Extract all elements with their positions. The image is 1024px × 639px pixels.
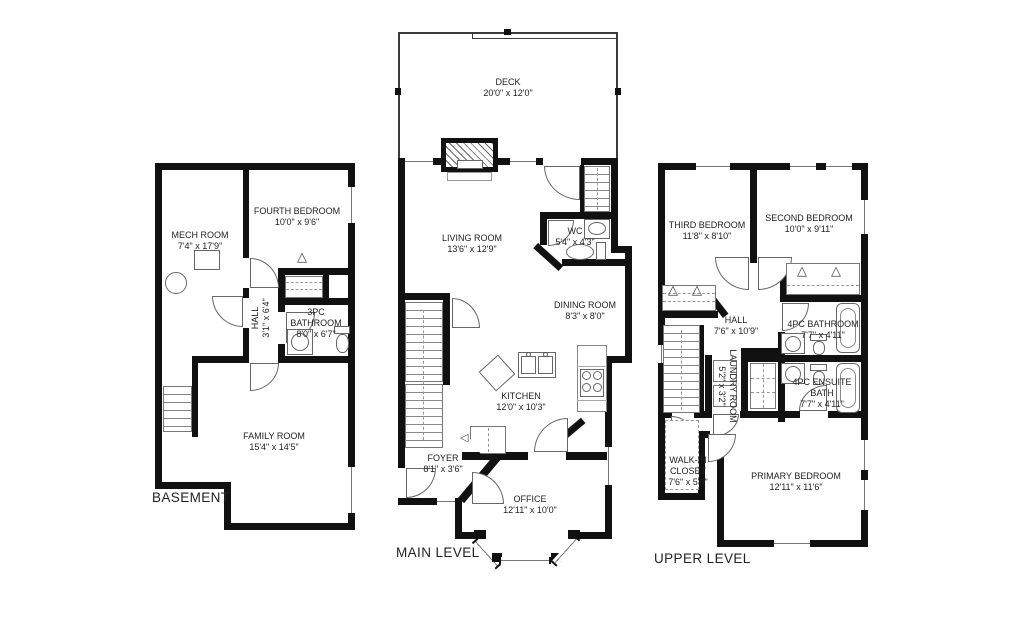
wall	[192, 356, 249, 363]
room-dims: 7'6" x 5'8"	[657, 477, 719, 488]
wall	[741, 355, 748, 411]
bay-window	[499, 557, 551, 564]
wall	[705, 355, 712, 411]
room-dims: 20'0" x 12'0"	[468, 88, 548, 99]
deck-line	[472, 32, 473, 39]
room-name: DINING ROOM	[540, 300, 630, 311]
room-name: HALL	[701, 315, 771, 326]
room-dims: 3'1" x 6'4"	[261, 283, 272, 353]
stairs-basement	[163, 386, 192, 432]
room-name: FAMILY ROOM	[229, 431, 319, 442]
room-name: LAUNDRY ROOM	[727, 349, 738, 423]
room-label-kitchen: KITCHEN 12'0" x 10'3"	[476, 391, 566, 413]
floorplan-canvas: △ MECH ROOM 7'4" x 17'9" FOURTH BEDROOM …	[0, 0, 1024, 639]
room-name: HALL	[250, 283, 261, 353]
door-gap	[543, 158, 581, 165]
deck-post	[395, 88, 401, 95]
stair-direction-line	[597, 168, 598, 210]
room-name: FOYER	[403, 453, 483, 464]
shelf-line	[488, 428, 489, 452]
room-dims: 5'4" x 4'3"	[547, 237, 603, 248]
room-name: LIVING ROOM	[427, 233, 517, 244]
door-arc	[715, 257, 749, 290]
window	[694, 163, 732, 170]
room-label-3pc-bathroom: 3PC BATHROOM 8'0" x 6'7"	[286, 307, 346, 340]
stairs-main	[405, 302, 443, 382]
wall	[780, 295, 868, 302]
room-label-third-bedroom: THIRD BEDROOM 11'8" x 8'10"	[657, 220, 757, 242]
wall	[278, 268, 355, 275]
window	[788, 163, 818, 170]
room-dims: 7'4" x 17'9"	[155, 241, 245, 252]
sink-basin-symbol	[521, 356, 536, 374]
room-label-ensuite-bath: 4PC ENSUITE BATH 7'7" x 4'11"	[782, 377, 862, 410]
faucet-dot	[543, 352, 548, 357]
room-dims: 7'7" x 4'11"	[782, 399, 862, 410]
wall	[192, 356, 198, 437]
window	[348, 185, 355, 225]
shelf-line	[663, 301, 715, 302]
shelf-line	[751, 378, 775, 379]
hanger-symbol: △	[668, 283, 678, 296]
room-dims: 10'0" x 9'11"	[759, 224, 859, 235]
room-name: 4PC ENSUITE BATH	[782, 377, 862, 399]
room-name: 4PC BATHROOM	[777, 319, 869, 330]
wall	[740, 411, 800, 418]
shelf-line	[763, 364, 764, 408]
room-label-family-room: FAMILY ROOM 15'4" x 14'5"	[229, 431, 319, 453]
room-dims: 12'11" x 10'0"	[485, 505, 575, 516]
window	[824, 163, 854, 170]
closet-shelf	[285, 276, 323, 298]
wall	[540, 212, 547, 245]
hanger-symbol: △	[831, 264, 841, 277]
window	[508, 158, 538, 165]
room-label-laundry-room: LAUNDRY ROOM 5'2" x 3'2"	[716, 349, 738, 423]
room-name: OFFICE	[485, 494, 575, 505]
stairs-main-lower	[405, 384, 443, 448]
door-arc	[534, 418, 568, 452]
bay-window	[551, 535, 580, 566]
burner-symbol	[582, 371, 591, 380]
shelf-line	[751, 392, 775, 393]
window	[772, 540, 812, 547]
wall	[243, 328, 249, 358]
room-dims: 8'1" x 3'6"	[403, 464, 483, 475]
door-arc	[544, 166, 580, 200]
toilet-tank-symbol	[810, 364, 827, 371]
burner-symbol	[593, 371, 602, 380]
window	[861, 438, 868, 472]
wall	[750, 163, 757, 263]
room-label-office: OFFICE 12'11" x 10'0"	[485, 494, 575, 516]
room-name: SECOND BEDROOM	[759, 213, 859, 224]
dishwasher-symbol	[479, 355, 516, 392]
room-dims: 8'3" x 8'0"	[540, 311, 630, 322]
room-label-living-room: LIVING ROOM 13'6" x 12'9"	[427, 233, 517, 255]
stair-direction-line	[423, 310, 424, 440]
room-name: WALK-IN CLOSET	[657, 455, 719, 477]
room-label-wc: WC 5'4" x 4'3"	[547, 226, 603, 248]
room-label-mech-room: MECH ROOM 7'4" x 17'9"	[155, 230, 245, 252]
room-name: PRIMARY BEDROOM	[741, 471, 851, 482]
deck-line	[472, 38, 616, 39]
room-dims: 10'0" x 9'6"	[247, 217, 347, 228]
room-name: WC	[547, 226, 603, 237]
window	[861, 198, 868, 236]
burner-symbol	[582, 383, 591, 392]
sink-basin-symbol	[538, 356, 553, 374]
level-label-upper: UPPER LEVEL	[654, 551, 751, 566]
room-label-fourth-bedroom: FOURTH BEDROOM 10'0" x 9'6"	[247, 206, 347, 228]
wall	[611, 158, 618, 253]
deck-post	[504, 29, 511, 35]
hanger-symbol: △	[297, 250, 307, 263]
counter-line	[577, 366, 607, 367]
window	[403, 158, 435, 165]
level-label-main: MAIN LEVEL	[396, 545, 480, 560]
wall	[443, 293, 450, 385]
wall	[540, 212, 611, 219]
hanger-symbol: △	[797, 264, 807, 277]
room-label-upper-hall: HALL 7'6" x 10'9"	[701, 315, 771, 337]
room-dims: 13'6" x 12'9"	[427, 244, 517, 255]
door-arc	[452, 298, 480, 328]
fireplace-insert	[457, 160, 483, 169]
burner-symbol	[593, 383, 602, 392]
room-dims: 11'8" x 8'10"	[657, 231, 757, 242]
shelf-line	[787, 285, 859, 286]
faucet-dot	[526, 352, 531, 357]
wall	[278, 268, 285, 312]
window	[348, 465, 355, 515]
window	[861, 478, 868, 512]
room-name: DECK	[468, 77, 548, 88]
shelf-line	[286, 289, 322, 290]
door-arc	[250, 363, 279, 391]
hanger-symbol: △	[692, 283, 702, 296]
wall	[748, 355, 868, 362]
door-arc	[212, 296, 243, 327]
room-label-deck: DECK 20'0" x 12'0"	[468, 77, 548, 99]
water-tank-symbol	[165, 272, 187, 294]
room-name: THIRD BEDROOM	[657, 220, 757, 231]
room-dims: 8'0" x 6'7"	[286, 329, 346, 340]
wall	[278, 298, 355, 305]
room-label-primary-bedroom: PRIMARY BEDROOM 12'11" x 11'6"	[741, 471, 851, 493]
wall	[566, 452, 607, 460]
counter-line	[577, 400, 607, 401]
room-label-foyer: FOYER 8'1" x 3'6"	[403, 453, 483, 475]
toilet-bowl-symbol	[813, 341, 825, 355]
room-dims: 15'4" x 14'5"	[229, 442, 319, 453]
room-dims: 5'2" x 3'2"	[716, 349, 727, 423]
wall	[155, 163, 355, 170]
hanger-symbol: ◁	[460, 432, 468, 445]
room-dims: 7'6" x 10'9"	[701, 326, 771, 337]
room-name: KITCHEN	[476, 391, 566, 402]
room-label-4pc-bathroom: 4PC BATHROOM 7'7" x 4'11"	[777, 319, 869, 341]
shelf-line	[286, 282, 322, 283]
room-name: FOURTH BEDROOM	[247, 206, 347, 217]
wall	[700, 325, 704, 413]
stair-direction-line	[681, 330, 682, 410]
wall	[155, 482, 231, 489]
wall	[224, 523, 355, 530]
level-label-basement: BASEMENT	[152, 490, 229, 505]
furnace-symbol	[194, 250, 220, 270]
room-label-dining-room: DINING ROOM 8'3" x 8'0"	[540, 300, 630, 322]
wall	[455, 498, 462, 539]
room-label-basement-hall: HALL 3'1" x 6'4"	[250, 283, 272, 353]
room-dims: 12'11" x 11'6"	[741, 482, 851, 493]
wall	[155, 163, 162, 489]
deck-post	[615, 88, 621, 95]
room-label-walkin-closet: WALK-IN CLOSET 7'6" x 5'8"	[657, 455, 719, 488]
wall	[243, 288, 249, 298]
wall	[323, 268, 329, 305]
wall	[278, 356, 355, 363]
wall	[741, 348, 778, 355]
wall	[562, 259, 625, 266]
room-dims: 12'0" x 10'3"	[476, 402, 566, 413]
fireplace-hearth	[447, 172, 492, 181]
room-name: MECH ROOM	[155, 230, 245, 241]
room-name: 3PC BATHROOM	[286, 307, 346, 329]
room-label-second-bedroom: SECOND BEDROOM 10'0" x 9'11"	[759, 213, 859, 235]
room-dims: 7'7" x 4'11"	[777, 330, 869, 341]
